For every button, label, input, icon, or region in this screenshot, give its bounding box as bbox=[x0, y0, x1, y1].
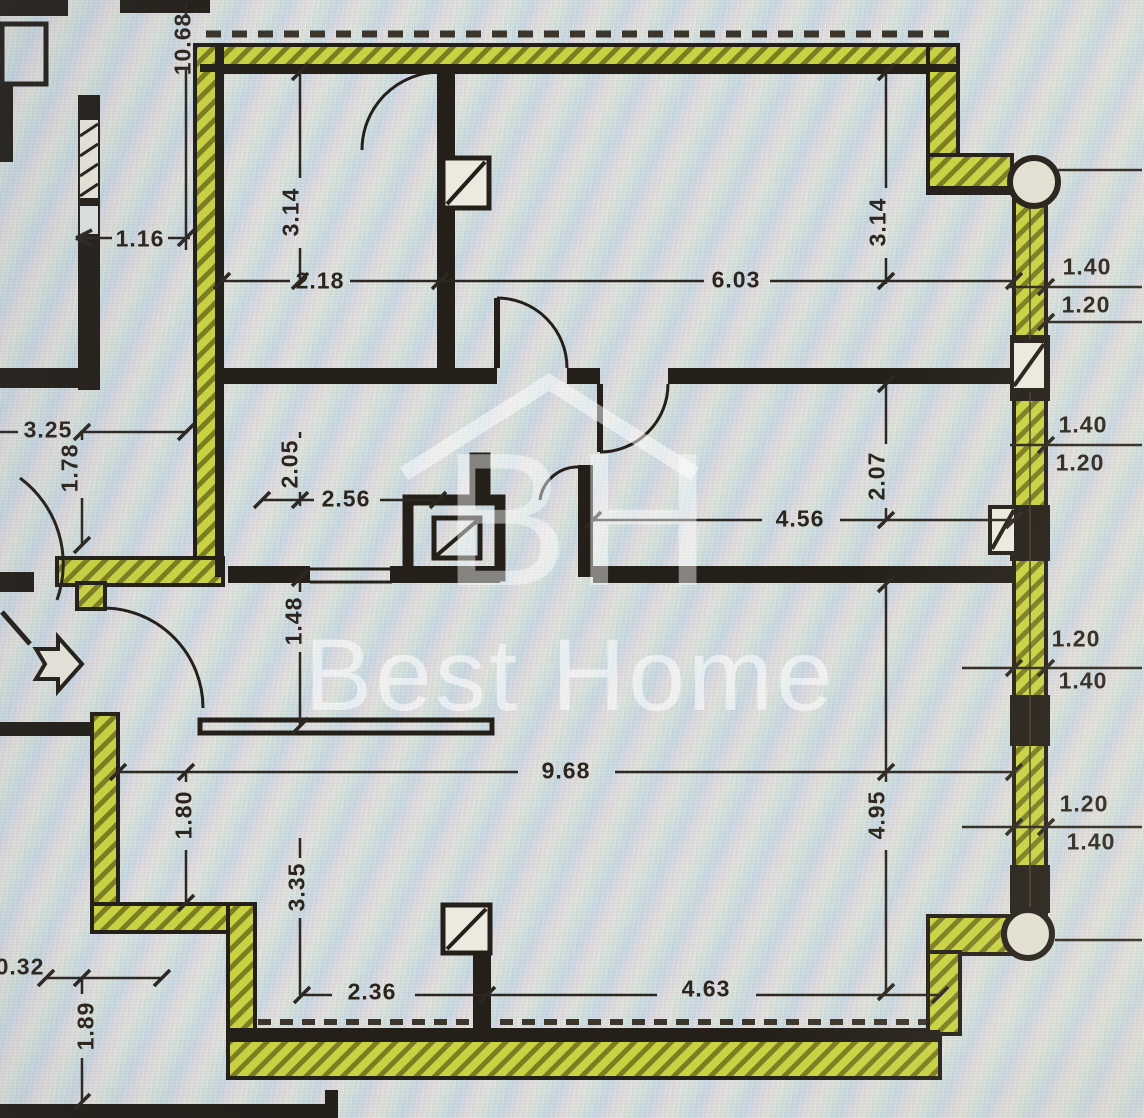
floor-plan-photo: BH Best Home 10.68 1.16 3.14 2.18 6.03 3… bbox=[0, 0, 1144, 1118]
partition-thin-wall bbox=[310, 569, 392, 582]
dimension-label: 4.56 bbox=[776, 506, 825, 533]
watermark-monogram: BH bbox=[442, 414, 718, 626]
dimension-label: 1.40 bbox=[1063, 254, 1112, 281]
dimension-label: 1.89 bbox=[73, 1002, 100, 1051]
dimension-label: 4.63 bbox=[682, 976, 731, 1003]
dimension-label: 1.20 bbox=[1062, 292, 1111, 319]
neighbor-window bbox=[80, 120, 98, 234]
entrance-arrow bbox=[36, 637, 82, 691]
dimension-label: 4.95 bbox=[864, 791, 891, 840]
dimension-label: 1.78 bbox=[57, 444, 84, 493]
dimension-label: 1.40 bbox=[1067, 829, 1116, 856]
dimension-label: 0.32 bbox=[0, 954, 44, 981]
dimension-label: 10.68 bbox=[170, 13, 197, 76]
dimension-label: 2.07 bbox=[864, 452, 891, 501]
dimension-label: 2.36 bbox=[348, 979, 397, 1006]
dimension-label: 1.48 bbox=[281, 597, 308, 646]
dimension-label: 1.20 bbox=[1056, 450, 1105, 477]
floor-plan-drawing: BH Best Home bbox=[0, 0, 1144, 1118]
dimension-label: 3.35 bbox=[284, 863, 311, 912]
dimension-label: 3.25 bbox=[24, 417, 73, 444]
dimension-label: 3.14 bbox=[278, 188, 305, 237]
dimension-label: 2.56 bbox=[322, 486, 371, 513]
dimension-label: 2.18 bbox=[296, 268, 345, 295]
dimension-label: 6.03 bbox=[712, 267, 761, 294]
dimension-label: 1.20 bbox=[1060, 791, 1109, 818]
dimension-label: 3.14 bbox=[865, 198, 892, 247]
dimension-label: 1.40 bbox=[1059, 668, 1108, 695]
dimension-label: 1.16 bbox=[116, 226, 165, 253]
dimension-label: 1.40 bbox=[1059, 412, 1108, 439]
dimension-label: 9.68 bbox=[542, 758, 591, 785]
dimension-label: 1.80 bbox=[171, 791, 198, 840]
watermark-brand: Best Home bbox=[304, 618, 836, 732]
dimension-label: 2.05 bbox=[277, 440, 304, 489]
dimension-label: 1.20 bbox=[1052, 626, 1101, 653]
watermark: BH Best Home bbox=[304, 382, 836, 732]
